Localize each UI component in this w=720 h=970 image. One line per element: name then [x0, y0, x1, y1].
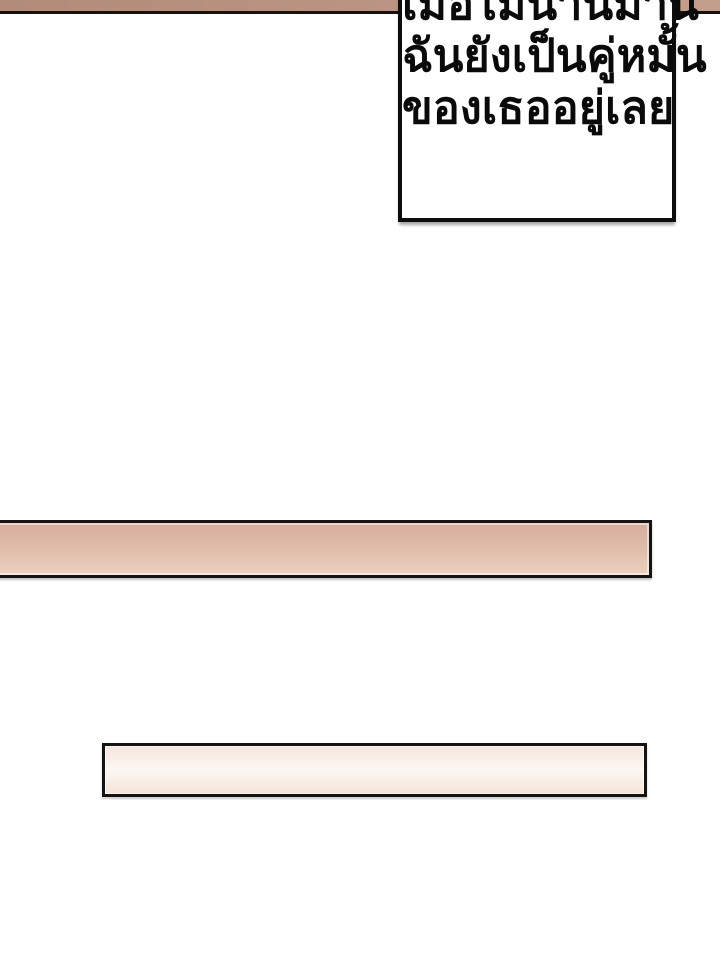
speech-bubble-text: เมื่อไม่นานมานี้ ฉันยังเป็นคู่หมั้น ของเ…	[402, 0, 672, 134]
speech-line-2: ฉันยังเป็นคู่หมั้น	[402, 30, 672, 82]
speech-line-3: ของเธออยู่เลย	[402, 82, 672, 134]
lower-panel-bar	[102, 743, 647, 797]
speech-bubble: เมื่อไม่นานมานี้ ฉันยังเป็นคู่หมั้น ของเ…	[398, 0, 676, 222]
speech-line-1: เมื่อไม่นานมานี้	[402, 0, 672, 30]
middle-panel-bar	[0, 520, 652, 578]
comic-page: เมื่อไม่นานมานี้ ฉันยังเป็นคู่หมั้น ของเ…	[0, 0, 720, 970]
